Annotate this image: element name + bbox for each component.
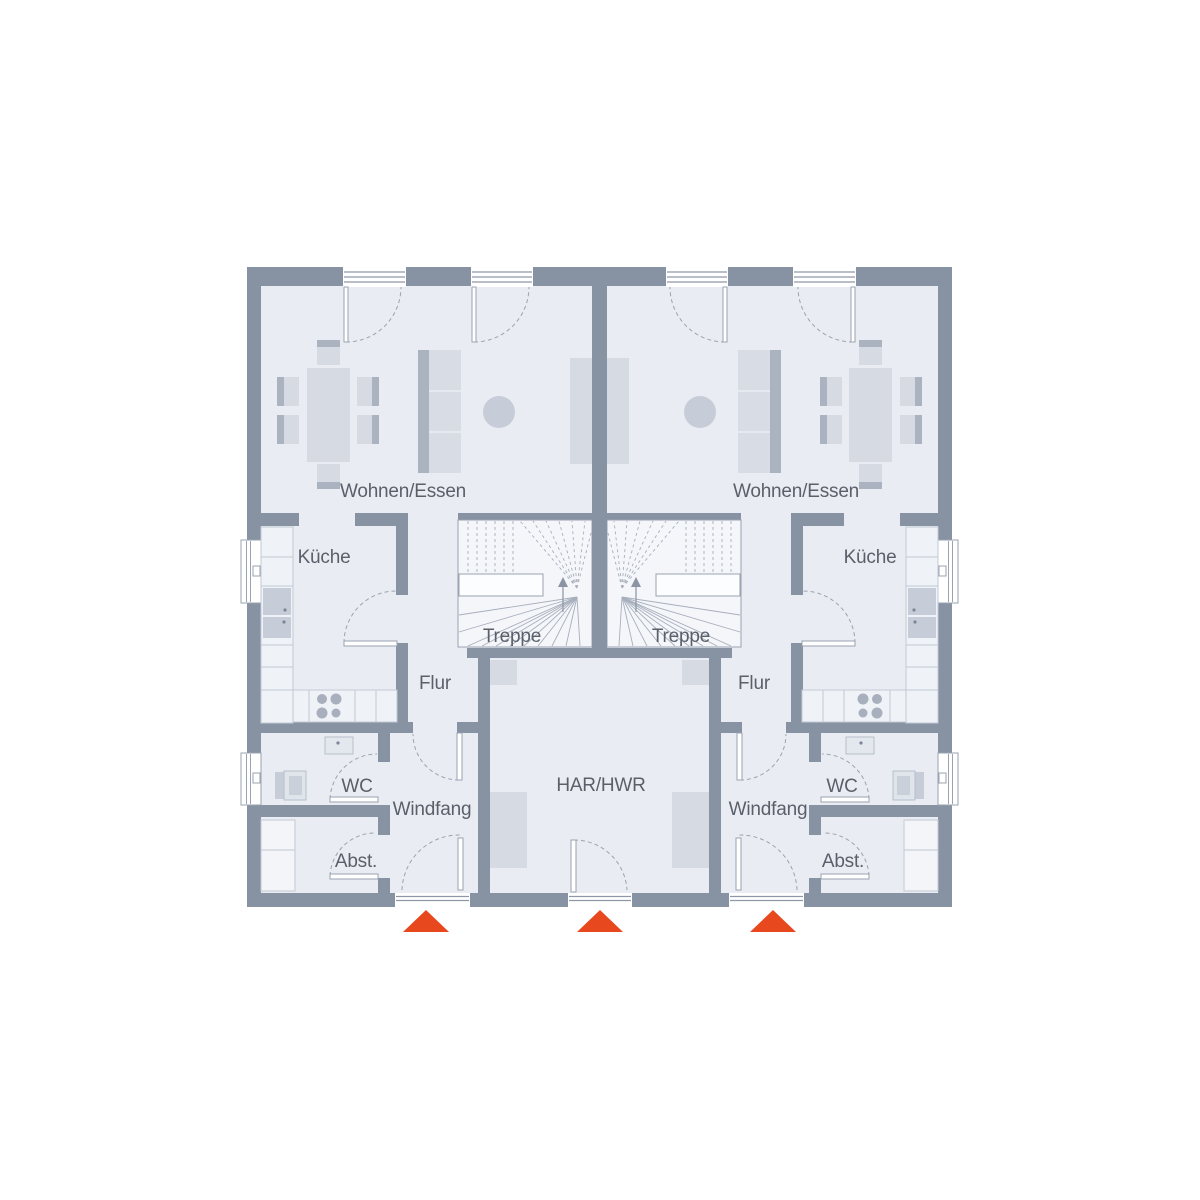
room-label-vestibule-left: Windfang <box>393 799 472 820</box>
party-wall <box>592 267 607 658</box>
coffee-table <box>483 396 515 428</box>
room-label-wc-right: WC <box>826 776 857 797</box>
room-label-storage-right: Abst. <box>822 851 864 872</box>
wc-window <box>241 753 261 805</box>
room-label-hall-right: Flur <box>738 673 771 694</box>
floor-plan-page: Wohnen/Essen Küche Treppe Flur WC Windfa… <box>0 0 1200 1200</box>
room-label-living-right: Wohnen/Essen <box>733 481 859 502</box>
room-label-storage-left: Abst. <box>335 851 377 872</box>
sideboard <box>570 358 593 464</box>
floor-plan-canvas: Wohnen/Essen Küche Treppe Flur WC Windfa… <box>0 0 1200 1200</box>
entrance-arrow-icon <box>403 910 449 932</box>
room-label-kitchen-right: Küche <box>844 547 897 568</box>
room-label-vestibule-right: Windfang <box>729 799 808 820</box>
storage-shelf <box>261 820 295 891</box>
kitchen-window <box>241 540 261 603</box>
sofa <box>418 350 461 473</box>
room-label-utility-center: HAR/HWR <box>556 775 645 796</box>
room-label-hall-left: Flur <box>419 673 452 694</box>
room-label-living-left: Wohnen/Essen <box>340 481 466 502</box>
room-label-stairs-left: Treppe <box>483 626 541 647</box>
room-label-kitchen-left: Küche <box>298 547 351 568</box>
room-label-wc-left: WC <box>341 776 372 797</box>
entrance-arrow-icon <box>577 910 623 932</box>
room-label-stairs-right: Treppe <box>652 626 710 647</box>
